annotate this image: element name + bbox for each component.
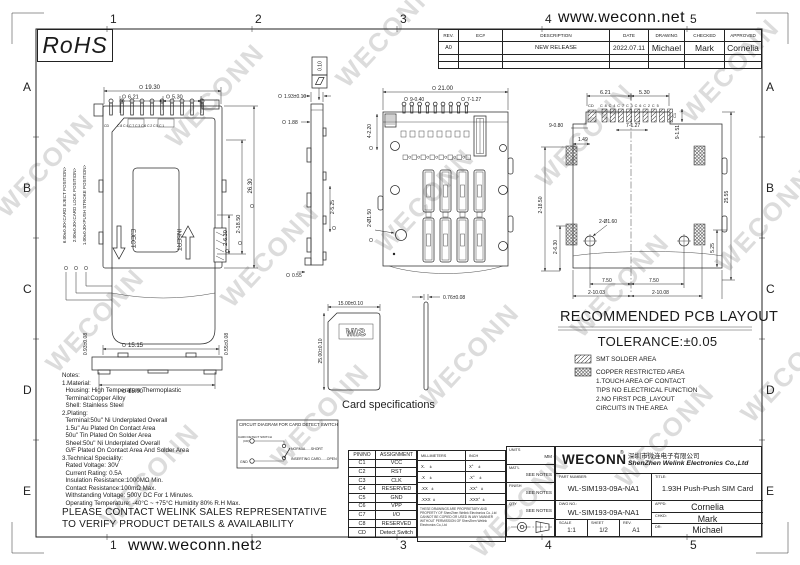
dim-7-1-27: 7-1.27 <box>467 97 481 103</box>
rev-header-checked: CHECKED <box>685 30 725 42</box>
part-number-value: WL-SIM193-09A-NA1 <box>556 484 651 493</box>
pin-assignment: I/O <box>376 511 417 520</box>
company-name-cn: 深圳市微连电子有限公司 <box>628 450 700 460</box>
pin-no: C2 <box>349 468 376 477</box>
side-view-drawing: 0.10 1.93±0.10 1.88 2-5.25 0.55 <box>278 57 336 279</box>
contact-line-2: TO VERIFY PRODUCT DETAILS & AVAILABILITY <box>62 519 327 531</box>
revision-table: REV. EC# DESCRIPTION DATE DRAWING CHECKE… <box>438 29 762 69</box>
grid-col-3-bottom: 3 <box>400 538 407 552</box>
note-line: Insulation Resistance:1000MΩ Min. <box>62 477 327 485</box>
watermark: WECONN <box>734 312 800 429</box>
pcb-c1-label: C1 <box>672 112 677 118</box>
grid-row-b-left: B <box>23 181 31 195</box>
rohs-badge: RoHS <box>37 29 113 62</box>
legend-copper-0: COPPER RESTRICTED AREA <box>596 368 684 377</box>
insert-label: INSERT <box>175 229 181 251</box>
grid-col-4-bottom: 4 <box>545 538 552 552</box>
top-view-pins <box>109 99 204 115</box>
grid-row-b-right: B <box>766 181 774 195</box>
rev-label: REV. <box>623 521 632 525</box>
pcb-dim-25-55: 25.55 <box>724 191 730 204</box>
dim-card-thickness: 0.76±0.08 <box>443 295 465 301</box>
registered-mark: ® <box>620 450 624 456</box>
grid-col-2-bottom: 2 <box>255 538 262 552</box>
grid-row-c-left: C <box>23 282 32 296</box>
tolerance-header-mm: MILLIMETERS <box>418 451 466 461</box>
dim-21-00: 21.00 <box>438 86 454 92</box>
tolerance-cell: .X ± <box>418 472 466 483</box>
rev-value-checked: Mark <box>685 42 725 55</box>
pcb-dim-7-1-27: 7-1.27 <box>626 123 640 129</box>
chkd-value: Mark <box>652 514 763 524</box>
note-line: Rated Voltage: 30V <box>62 462 327 470</box>
dwg-no-value: WL-SIM193-09A-NA1 <box>556 508 651 517</box>
drawing-sheet: WECONN WECONN WECONN WECONN WECONN WECON… <box>0 0 800 565</box>
tolerance-cell: .XX ± <box>418 483 466 494</box>
note-line: Current Rating: 0.5A <box>62 470 327 478</box>
dim-0-55-008: 0.55±0.08 <box>224 333 230 355</box>
pcb-dim-2-18-50: 2-18.50 <box>538 196 544 213</box>
grid-row-a-right: A <box>766 80 774 94</box>
sheet-label: SHEET <box>591 521 604 525</box>
pcb-tolerance: TOLERANCE:±0.05 <box>560 334 755 349</box>
rev-value-date: 2022.07.11 <box>610 42 649 55</box>
dim-0-93: 0.93±0.08 <box>83 333 89 355</box>
pin-no: C7 <box>349 511 376 520</box>
grid-col-3-top: 3 <box>400 12 407 26</box>
pcb-cd-label: CD <box>588 103 594 108</box>
top-view-pin-row-label: C8C4C7C3C6C2C5C1 <box>117 124 165 128</box>
pcb-dim-2-6-30: 2-6.30 <box>553 240 559 254</box>
dim-card-lock-position: 2.00±0.30<CARD LOCK POSITION> <box>72 168 77 243</box>
note-line: G/F Plated On Contact Area And Solder Ar… <box>62 447 327 455</box>
tolerance-header-inch: INCH <box>466 451 505 461</box>
drawing-disclaimer: THESE DRAWINGS ARE PROPRIETARY AND PROPE… <box>418 505 505 541</box>
rev-header-ec: EC# <box>459 30 503 42</box>
pcb-dim-6-21: 6.21 <box>600 90 611 96</box>
pin-table-row: C2RST <box>349 468 416 477</box>
pin-assignment: CLK <box>376 477 417 486</box>
legend-copper-2: TIPS NO ELECTRICAL FUNCTION <box>596 386 697 395</box>
rev-header-date: DATE <box>610 30 649 42</box>
pin-table-row: CDDetect Switch <box>349 528 416 537</box>
grid-row-a-left: A <box>23 80 31 94</box>
weconn-logo: WECONN <box>562 452 627 467</box>
pin-table-row: C1VCC <box>349 460 416 469</box>
pin-table-row: C8RESERVED <box>349 520 416 529</box>
pin-table-row: C4RESERVED <box>349 485 416 494</box>
note-line: Notes: <box>62 372 327 380</box>
watermark: WECONN <box>709 162 800 279</box>
title-block-logo-cell: WECONN ® 深圳市微连电子有限公司 ShenZhen Welink Ele… <box>556 447 761 474</box>
dim-19-30: 19.30 <box>145 85 161 91</box>
pin-table-row: C5GND <box>349 494 416 503</box>
top-view-cd-label: CD <box>104 124 110 128</box>
watermark: WECONN <box>0 107 101 224</box>
scale-sheet-rev-row: SCALE1:1 SHEET1/2 REV.A1 <box>556 520 652 536</box>
rev-header-approved: APPROVED <box>725 30 761 42</box>
pcb-dim-7-50-right: 7.50 <box>649 278 659 284</box>
qty-label: QTY <box>509 502 517 506</box>
pcb-pin-row-label: C8C4C7C3C6C2C5 <box>600 104 661 108</box>
pin-assignment: RESERVED <box>376 485 417 494</box>
dim-6-21: 6.21 <box>128 95 139 101</box>
copper-restricted-swatch-icon <box>575 368 591 376</box>
pcb-dim-2-10-03: 2-10.03 <box>588 290 605 296</box>
smt-solder-swatch-icon <box>575 355 591 363</box>
watermark: WECONN <box>329 0 441 94</box>
pin-table-header-no: PIN/NO <box>349 451 376 460</box>
dim-1-88: 1.88 <box>288 120 298 126</box>
matl-label: MAT'L <box>509 466 520 470</box>
legend-copper-4: CIRCUITS IN THE AREA <box>596 404 668 413</box>
pin-no: C5 <box>349 494 376 503</box>
pcb-dim-1-49: 1.49 <box>578 137 588 143</box>
dr-cell: DR: Michael <box>652 524 763 536</box>
tolerance-cell: .XX° ± <box>466 483 505 494</box>
pin-assignment: RST <box>376 468 417 477</box>
watermark: WECONN <box>39 262 151 379</box>
note-line: Housing: High Temperature Thermoplastic <box>62 387 327 395</box>
grid-row-e-right: E <box>766 484 774 498</box>
flatness-symbol-icon <box>316 78 325 85</box>
watermark: WECONN <box>414 297 526 414</box>
pcb-dim-7-50-left: 7.50 <box>602 278 612 284</box>
title-value: 1.93H Push-Push SIM Card <box>652 484 763 493</box>
tolerance-cell: X° ± <box>466 461 505 472</box>
note-line: 1.Material: <box>62 380 327 388</box>
dim-2-18-50: 2-18.50 <box>236 215 242 234</box>
pin-no: C3 <box>349 477 376 486</box>
dr-value: Michael <box>652 525 763 535</box>
note-line: Shell: Stainless Steel <box>62 402 327 410</box>
watermark: WECONN <box>529 77 641 194</box>
grid-col-2-top: 2 <box>255 12 262 26</box>
scale-value: 1:1 <box>556 527 587 534</box>
chkd-cell: CHKD: Mark <box>652 513 763 525</box>
units-label: UNITS <box>509 448 520 452</box>
dim-5-30: 5.30 <box>172 95 183 101</box>
note-line: 3.Technical Speciality: <box>62 455 327 463</box>
note-line: 2.Plating: <box>62 410 327 418</box>
pin-table-row: C3CLK <box>349 477 416 486</box>
rev-header-rev: REV. <box>439 30 459 42</box>
dwg-no-label: DWG NO.: <box>559 502 577 506</box>
grid-row-e-left: E <box>23 484 31 498</box>
grid-col-5-bottom: 5 <box>690 538 697 552</box>
dim-2-6-30: 2-6.30 <box>223 230 229 246</box>
rev-value-approved: Cornelia <box>725 42 761 55</box>
dim-push-stroke-position: 1.00±0.30<PUSH STROKE POSITION> <box>82 165 87 246</box>
rev-value-description: NEW RELEASE <box>503 42 610 55</box>
pin-no: CD <box>349 528 376 537</box>
pcb-dim-9-1-51: 9-1.51 <box>675 125 681 139</box>
pcb-dim-9-0-80: 9-0.80 <box>549 123 563 129</box>
pin-assignment: RESERVED <box>376 520 417 529</box>
pin-table-header-assignment: ASSIGNMENT <box>376 451 417 460</box>
sheet-value: 1/2 <box>588 527 619 534</box>
pcb-layout-title: RECOMMENDED PCB LAYOUT <box>560 309 755 325</box>
pin-assignment: VCC <box>376 460 417 469</box>
rev-header-drawing: DRAWING <box>649 30 685 42</box>
tolerance-table: MILLIMETERS INCH X. ±X° ± .X ±.X° ± .XX … <box>417 450 506 542</box>
pin-no: C1 <box>349 460 376 469</box>
grid-col-1-top: 1 <box>110 12 117 26</box>
note-line: Sheel:50u" Ni Underplated Overall <box>62 440 327 448</box>
card-spec-caption: Card specifications <box>342 399 435 411</box>
note-line: 50u" Tin Plated On Solder Area <box>62 432 327 440</box>
pcb-dim-2-10-08: 2-10.08 <box>652 290 669 296</box>
matl-value: SEE NOTES <box>507 472 552 477</box>
dim-15-15: 15.15 <box>128 343 144 349</box>
dim-1-93: 1.93±0.10 <box>284 94 306 100</box>
pin-assignment: GND <box>376 494 417 503</box>
tolerance-cell: .XXX ± <box>418 494 466 505</box>
grid-col-5-top: 5 <box>690 12 697 26</box>
tolerance-cell: .XXX° ± <box>466 494 505 505</box>
finish-label: FINISH <box>509 484 521 488</box>
pin-assignment: VPP <box>376 503 417 512</box>
pin-assignment-table: PIN/NO ASSIGNMENT C1VCC C2RST C3CLK C4RE… <box>348 450 417 538</box>
pin-table-row: C7I/O <box>349 511 416 520</box>
dim-card-height: 25.00±0.10 <box>318 338 324 363</box>
rev-value-drawing: Michael <box>649 42 685 55</box>
units-value: MM <box>507 454 552 459</box>
note-line: Withstanding Voltage: 500V DC For 1 Minu… <box>62 492 327 500</box>
circuit-diagram-title: CIRCUIT DIAGRAM FOR CARD DETECT SWITCH <box>239 422 336 427</box>
dim-26-30: 26.30 <box>248 178 254 194</box>
watermark: WECONN <box>564 227 676 344</box>
dim-0-55: 0.55 <box>292 273 302 279</box>
dim-9-0-40: 9-0.40 <box>410 97 424 103</box>
bottom-view-drawing: 21.00 9-0.40 7-1.27 4-2.20 2-Ø1.50 <box>367 86 513 274</box>
tolerance-cell: .X° ± <box>466 472 505 483</box>
contact-line-1: PLEASE CONTACT WELINK SALES REPRESENTATI… <box>62 507 327 519</box>
top-view-drawing: EJECT INSERT CD C8C4C7C3C6C2C5C1 19.30 6… <box>62 85 258 344</box>
info-block: UNITSMM MAT'LSEE NOTES FINISHSEE NOTES Q… <box>506 446 555 537</box>
note-line: Contact Resistance:100mΩ Max. <box>62 485 327 493</box>
pin-no: C4 <box>349 485 376 494</box>
rev-value-rev: A0 <box>439 42 459 55</box>
qty-value: SEE NOTES <box>507 508 552 513</box>
appd-cell: APPD: Cornelia <box>652 501 763 513</box>
grid-row-c-right: C <box>766 282 775 296</box>
grid-col-4-top: 4 <box>545 12 552 26</box>
grid-row-d-left: D <box>23 383 32 397</box>
grid-row-d-right: D <box>766 383 775 397</box>
pin-table-row: C6VPP <box>349 503 416 512</box>
part-number-cell: PART NUMBER: WL-SIM193-09A-NA1 <box>556 474 652 501</box>
pcb-dim-5-30: 5.30 <box>639 90 650 96</box>
dim-card-eject-position: 6.00±0.30<CARD EJECT POSITION> <box>62 167 67 244</box>
eject-label: EJECT <box>129 229 135 248</box>
company-name-en: ShenZhen Welink Electronics Co.,Ltd <box>628 460 748 467</box>
title-cell: TITLE: 1.93H Push-Push SIM Card <box>652 474 763 501</box>
tolerance-cell: X. ± <box>418 461 466 472</box>
watermark: WECONN <box>214 197 326 314</box>
card-spec-drawing: SIM 15.00±0.10 25.00±0.10 0.76±0.08 <box>318 294 465 390</box>
title-label: TITLE: <box>655 475 666 479</box>
dim-2-d1-50: 2-Ø1.50 <box>367 209 373 227</box>
projection-symbol-cell <box>507 519 554 538</box>
pcb-dim-5-25: 5.25 <box>710 243 716 253</box>
notes-block: Notes: 1.Material: Housing: High Tempera… <box>62 372 327 530</box>
sim-card-logo: SIM <box>345 327 365 339</box>
note-line: Terminal:Copper Alloy <box>62 395 327 403</box>
rev-header-description: DESCRIPTION <box>503 30 610 42</box>
note-line: Operating Temperature: -40°C ~ +75°C Hum… <box>62 500 327 508</box>
dim-card-width: 15.00±0.10 <box>338 301 363 307</box>
rev-value-ec <box>459 42 503 55</box>
scale-label: SCALE <box>559 521 571 525</box>
pin-no: C6 <box>349 503 376 512</box>
legend-copper-3: 2.NO FIRST PCB_LAYOUT <box>596 395 675 404</box>
rohs-label: RoHS <box>42 32 107 59</box>
title-block: WECONN ® 深圳市微连电子有限公司 ShenZhen Welink Ele… <box>555 446 762 537</box>
dim-2-5-25: 2-5.25 <box>330 200 336 214</box>
pin-no: C8 <box>349 520 376 529</box>
finish-value: SEE NOTES <box>507 490 552 495</box>
legend-smt: SMT SOLDER AREA <box>596 356 656 363</box>
legend-copper-1: 1.TOUCH AREA OF CONTACT <box>596 377 685 386</box>
appd-value: Cornelia <box>652 502 763 512</box>
dim-4-2-20: 4-2.20 <box>367 124 373 138</box>
rev-value: A1 <box>620 527 652 534</box>
dwg-no-cell: DWG NO.: WL-SIM193-09A-NA1 <box>556 501 652 520</box>
flatness-value: 0.10 <box>318 61 324 71</box>
pcb-dim-2-d1-60: 2-Ø1.60 <box>599 219 617 225</box>
watermark: WECONN <box>369 142 481 259</box>
grid-col-1-bottom: 1 <box>110 538 117 552</box>
watermark: WECONN <box>159 37 271 154</box>
pin-assignment: Detect Switch <box>376 528 417 537</box>
part-number-label: PART NUMBER: <box>559 475 587 479</box>
website-top: www.weconn.net <box>558 9 685 27</box>
website-bottom: www.weconn.net <box>128 537 255 555</box>
